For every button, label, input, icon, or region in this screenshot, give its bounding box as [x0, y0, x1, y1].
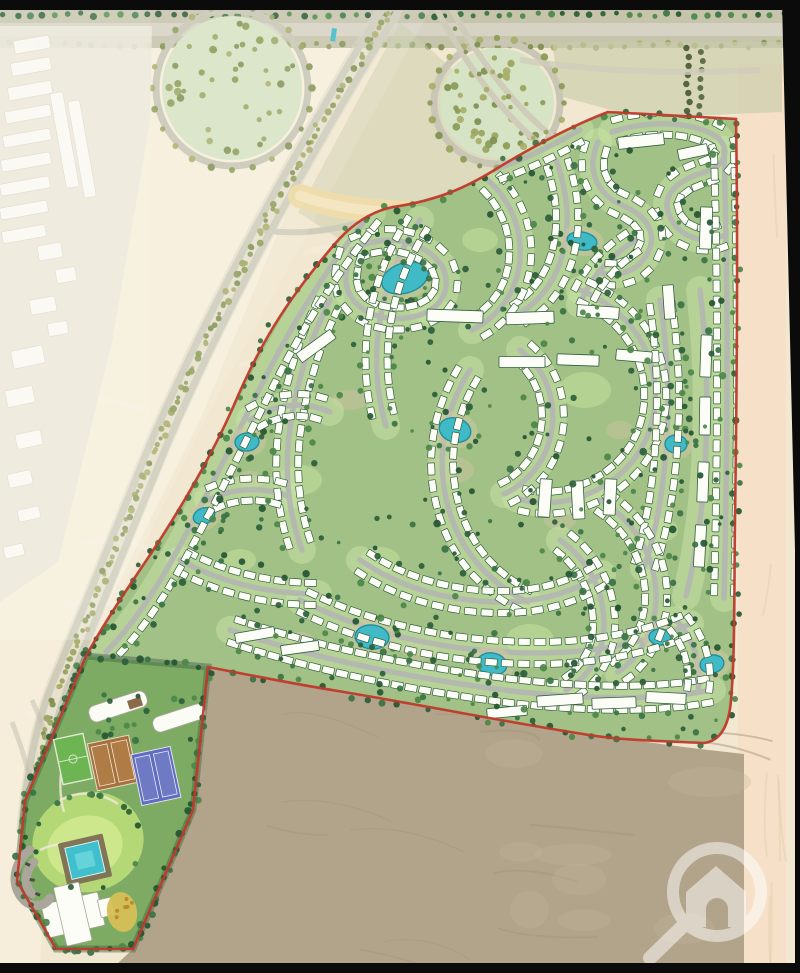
master-plan-image [0, 0, 800, 973]
site-master-plan-svg [0, 0, 800, 973]
